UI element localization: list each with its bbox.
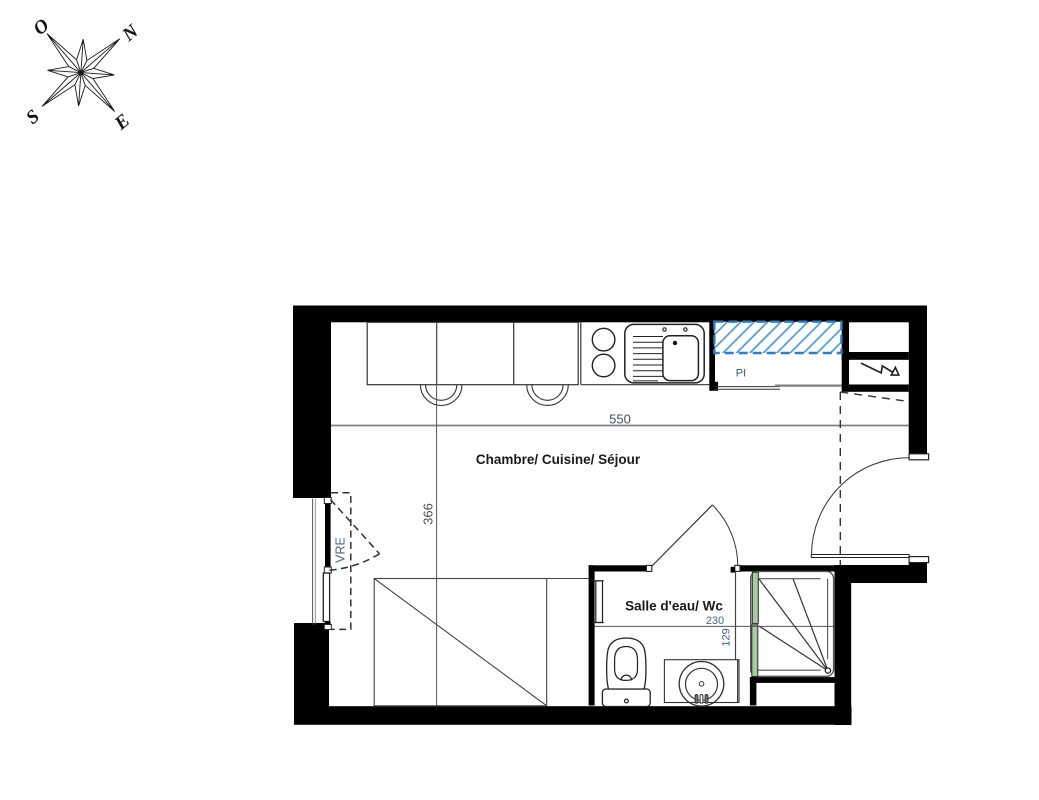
svg-text:S: S bbox=[22, 106, 44, 129]
svg-text:PI: PI bbox=[736, 368, 746, 380]
svg-text:550: 550 bbox=[609, 412, 631, 427]
svg-text:129: 129 bbox=[721, 628, 733, 646]
svg-text:N: N bbox=[118, 20, 144, 46]
svg-text:Salle d'eau/ Wc: Salle d'eau/ Wc bbox=[625, 599, 723, 614]
svg-text:366: 366 bbox=[421, 503, 436, 525]
svg-text:Chambre/ Cuisine/ Séjour: Chambre/ Cuisine/ Séjour bbox=[476, 452, 641, 467]
svg-text:E: E bbox=[110, 110, 134, 135]
svg-text:VRE: VRE bbox=[334, 537, 348, 563]
svg-text:230: 230 bbox=[706, 615, 724, 627]
